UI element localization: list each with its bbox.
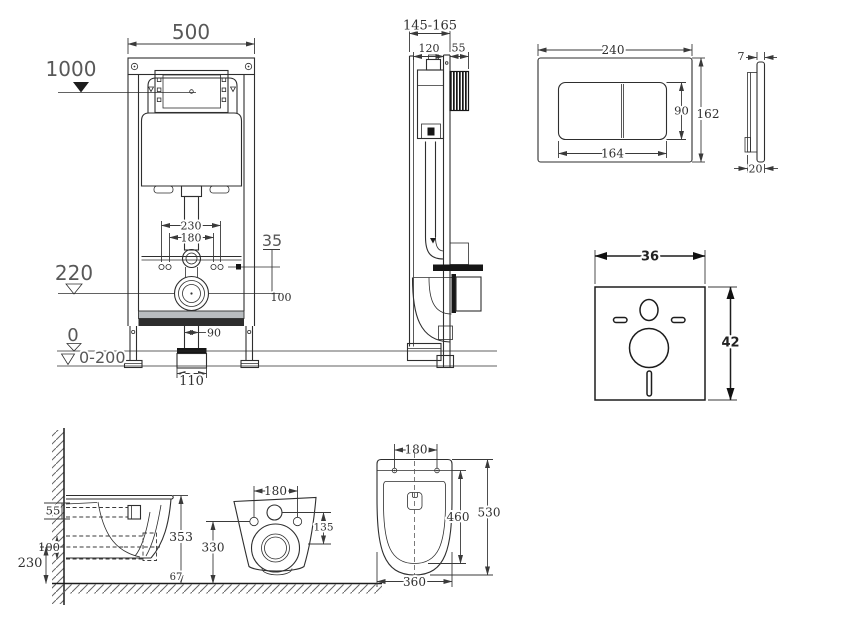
fixing-bolt bbox=[211, 264, 216, 269]
right-foot bbox=[241, 326, 259, 368]
bolt-dot bbox=[436, 470, 438, 472]
rim-to-bolt-label: 55 bbox=[46, 504, 61, 518]
floor-note-label: 67 bbox=[170, 572, 183, 583]
drain-width-label: 110 bbox=[179, 374, 204, 389]
mat-outline bbox=[595, 287, 705, 400]
install-height-label: 1000 bbox=[46, 57, 97, 81]
bolt-dot bbox=[134, 66, 136, 68]
lower-crossbar-dark bbox=[139, 319, 245, 327]
knockout bbox=[154, 186, 173, 193]
mat-outlet-hole bbox=[630, 329, 669, 368]
box-depth-label: 55 bbox=[452, 42, 466, 55]
bowl-inner-curve bbox=[146, 505, 161, 556]
mat-inlet-hole bbox=[640, 300, 658, 321]
fixing-bolt bbox=[159, 264, 164, 269]
bolt-dot bbox=[394, 470, 396, 472]
protection-box bbox=[450, 72, 469, 111]
seat-length-label: 460 bbox=[447, 510, 470, 524]
depth-range-label: 145-165 bbox=[403, 19, 457, 34]
wc-width-label: 360 bbox=[403, 575, 426, 589]
wc-top-view: 180 460 530 360 bbox=[377, 443, 500, 590]
flush-pipe-flange bbox=[182, 186, 202, 197]
fixing-bolt bbox=[218, 264, 223, 269]
mat-width-label: 36 bbox=[641, 250, 659, 265]
drawing-svg: 500 1000 bbox=[0, 0, 851, 630]
pipe-bend bbox=[436, 237, 444, 251]
sound-mat-view: 36 42 bbox=[595, 250, 740, 401]
bolt-dot bbox=[248, 66, 250, 68]
flush-buttons bbox=[559, 83, 667, 140]
flush-elbow-inner bbox=[186, 253, 197, 264]
frame-width-label: 500 bbox=[172, 20, 210, 44]
mat-slot-bottom bbox=[647, 371, 652, 396]
bowl-front-curve bbox=[151, 499, 171, 558]
access-panel-frame bbox=[155, 71, 228, 113]
bowl-top-line bbox=[66, 503, 97, 505]
button-span-label: 164 bbox=[601, 147, 624, 161]
floor-hatch bbox=[52, 585, 382, 594]
pipe-width-label: 90 bbox=[207, 327, 221, 340]
frame-front-view: 500 1000 bbox=[46, 20, 497, 389]
frame-depth-label: 120 bbox=[419, 42, 440, 55]
level-triangle-filled bbox=[73, 82, 89, 93]
connector-flange bbox=[452, 274, 457, 313]
plate-profile-face bbox=[757, 62, 765, 162]
ptrap-inner bbox=[429, 278, 452, 315]
wc-side-view: 55 100 230 353 67 bbox=[18, 428, 382, 605]
technical-drawing-page: 500 1000 bbox=[0, 0, 851, 630]
fixing-bolt bbox=[166, 264, 171, 269]
bowl-inner-curve bbox=[98, 502, 140, 557]
plate-lip-label: 7 bbox=[738, 50, 745, 63]
level-triangle-open bbox=[66, 284, 82, 294]
cistern-tank bbox=[142, 113, 242, 186]
frame-side-view: 145-165 120 55 bbox=[403, 19, 483, 368]
flush-opening-notch bbox=[413, 493, 418, 498]
rail-hole bbox=[445, 62, 448, 65]
ptrap-outer bbox=[413, 278, 451, 343]
plate-depth-label: 20 bbox=[749, 163, 763, 176]
floor-level-label: 0 bbox=[67, 325, 78, 346]
valve-dark bbox=[428, 128, 435, 136]
outlet-offset-label: 100 bbox=[271, 291, 292, 304]
bolt-hole-right bbox=[293, 517, 301, 525]
level-triangle-open bbox=[62, 354, 75, 365]
wc-length-label: 530 bbox=[478, 506, 501, 520]
back-bolt-span-label: 180 bbox=[264, 484, 287, 498]
wc-back-view: 180 135 330 bbox=[202, 484, 334, 584]
fixing-bolt-side bbox=[128, 506, 141, 520]
outlet-inner bbox=[265, 537, 287, 559]
bracket-box bbox=[450, 243, 469, 265]
button-height-label: 90 bbox=[674, 104, 689, 118]
outlet-mid bbox=[262, 534, 290, 562]
outlet-height-label: 220 bbox=[55, 261, 93, 285]
plate-width-label: 240 bbox=[602, 43, 625, 57]
outlet-center bbox=[190, 292, 192, 294]
wc-height-label: 353 bbox=[169, 529, 193, 544]
plate-height-label: 162 bbox=[697, 107, 720, 121]
water-level-mark bbox=[231, 87, 236, 92]
lid-tip bbox=[172, 496, 173, 500]
top-bolt-span-label: 180 bbox=[405, 443, 428, 457]
drain-connector bbox=[456, 277, 481, 311]
bolt-offset-label: 35 bbox=[262, 231, 282, 250]
support-bracket bbox=[433, 265, 483, 272]
lower-crossbar-top bbox=[139, 311, 245, 319]
bolt-span-inner-label: 180 bbox=[181, 232, 202, 245]
trap-foot bbox=[408, 344, 442, 361]
mat-slot-left bbox=[614, 318, 628, 323]
inlet-box bbox=[427, 60, 441, 71]
access-panel-window bbox=[163, 75, 221, 108]
inlet-cap bbox=[429, 55, 439, 60]
flow-arrow bbox=[430, 238, 436, 244]
mat-slot-right bbox=[672, 318, 686, 323]
left-foot bbox=[125, 326, 143, 368]
ref-square bbox=[236, 264, 241, 270]
adjust-range-label: 0-200 bbox=[79, 348, 126, 367]
water-level-mark bbox=[149, 87, 154, 92]
top-crossbar bbox=[128, 58, 255, 75]
flush-elbow-outer bbox=[183, 250, 201, 268]
mat-height-label: 42 bbox=[721, 336, 739, 351]
bolt-height-label: 330 bbox=[202, 541, 225, 555]
drain-height-label: 230 bbox=[18, 556, 43, 571]
inlet-to-bolt-label: 135 bbox=[313, 522, 333, 534]
flush-plate-side-profile: 7 20 bbox=[734, 50, 778, 176]
inlet-hole bbox=[267, 505, 282, 520]
plate-profile-back bbox=[748, 73, 758, 153]
outlet-boss bbox=[252, 524, 300, 572]
bolt-hole-left bbox=[250, 517, 258, 525]
flush-plate-front-view: 240 90 162 164 bbox=[538, 43, 719, 162]
knockout bbox=[210, 186, 229, 193]
